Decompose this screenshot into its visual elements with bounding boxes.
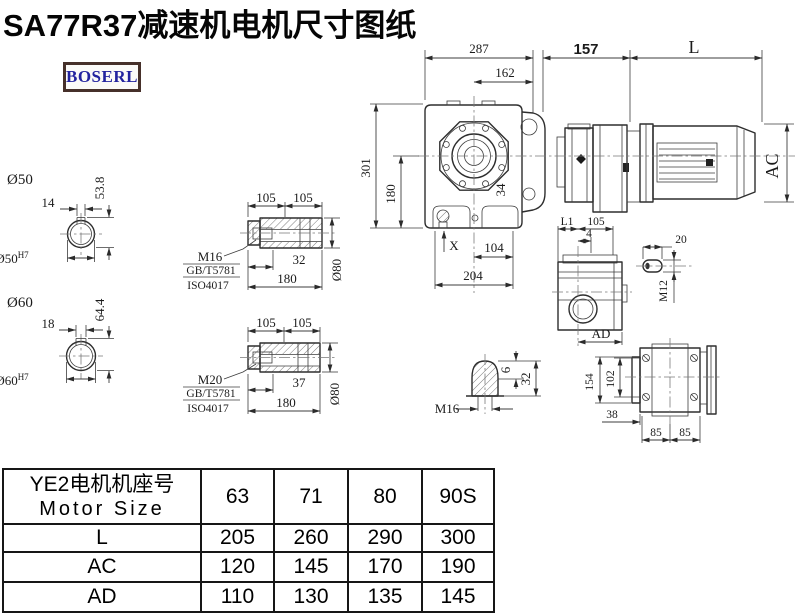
table-header-row: YE2电机机座号 Motor Size 63 71 80 90S [3, 469, 494, 524]
section50-label: Ø50 [7, 172, 33, 188]
col-63: 63 [201, 469, 274, 524]
shaft-section-60: Ø60 18 64.4 Ø60H7 [0, 295, 114, 388]
dim-L1: L1 [561, 216, 574, 228]
main-view-motor [418, 96, 795, 293]
dim-AD: AD [592, 326, 611, 341]
col-90S: 90S [422, 469, 494, 524]
std-gb: GB/T5781 [186, 388, 235, 400]
drawing-sheet: SA77R37减速机电机尺寸图纸 BOSERL [0, 0, 800, 613]
dim-180-main: 180 [383, 184, 398, 204]
cell: 300 [422, 524, 494, 552]
dim-105a: 105 [256, 190, 276, 205]
motor-size-table: YE2电机机座号 Motor Size 63 71 80 90S L 205 2… [2, 468, 495, 613]
dim-38: 38 [606, 409, 618, 421]
dim-53.8: 53.8 [92, 177, 107, 200]
dim-204: 204 [463, 268, 483, 283]
dim-85a: 85 [650, 427, 662, 439]
std-iso: ISO4017 [187, 403, 229, 415]
dim-85b: 85 [679, 427, 691, 439]
dim-bore-60: Ø60H7 [0, 372, 29, 388]
dim-180: 180 [276, 395, 296, 410]
dim-105a: 105 [256, 315, 276, 330]
cell: 260 [274, 524, 348, 552]
table-header-motor-size: YE2电机机座号 Motor Size [3, 469, 201, 524]
std-iso: ISO4017 [187, 280, 229, 292]
cell: 110 [201, 582, 274, 612]
table-row: AC 120 145 170 190 [3, 552, 494, 582]
section60-label: Ø60 [7, 295, 33, 311]
dim-dia80: Ø80 [327, 383, 342, 405]
dim-64.4: 64.4 [92, 298, 107, 321]
cell: 145 [274, 552, 348, 582]
dim-287: 287 [469, 41, 489, 56]
dim-105: 105 [587, 216, 605, 228]
key-detail: 20 M12 [636, 234, 694, 303]
dim-102: 102 [605, 370, 617, 388]
dim-34: 34 [493, 183, 508, 197]
dim-32: 32 [518, 373, 533, 386]
dim-105b: 105 [293, 190, 313, 205]
header-en: Motor Size [4, 497, 200, 521]
cell: 120 [201, 552, 274, 582]
row-label-L: L [3, 524, 201, 552]
header-cn: YE2电机机座号 [4, 472, 200, 497]
dim-104: 104 [484, 240, 504, 255]
row-label-AC: AC [3, 552, 201, 582]
cell: 190 [422, 552, 494, 582]
back-view: 154 102 38 85 85 [584, 338, 722, 443]
dim-AC: AC [762, 153, 782, 178]
table-row: L 205 260 290 300 [3, 524, 494, 552]
table-row: AD 110 130 135 145 [3, 582, 494, 612]
dim-6: 6 [498, 366, 513, 373]
row-label-AD: AD [3, 582, 201, 612]
main-view-dimensions: 287 162 157 L 301 180 X 104 204 [358, 37, 794, 289]
dim-154: 154 [584, 373, 596, 391]
shaft-section-50: Ø50 14 53.8 Ø50H7 [0, 172, 114, 266]
cell: 130 [274, 582, 348, 612]
dim-L: L [689, 37, 700, 57]
thread-label: M16 [198, 249, 223, 264]
main-view-gearbox: 34 [425, 101, 545, 228]
dim-4: 4 [586, 228, 592, 240]
dim-bore-50: Ø50H7 [0, 250, 29, 266]
dim-157: 157 [573, 41, 598, 58]
cell: 205 [201, 524, 274, 552]
cell: 290 [348, 524, 422, 552]
dim-X: X [449, 238, 459, 253]
shaft-detail-2: 105 105 M20 GB/T5781 ISO4017 37 180 Ø80 [183, 315, 342, 415]
dim-301: 301 [358, 158, 373, 178]
dim-14: 14 [42, 195, 56, 210]
col-71: 71 [274, 469, 348, 524]
dim-dia80: Ø80 [329, 259, 344, 281]
dim-32: 32 [293, 252, 306, 267]
cell: 170 [348, 552, 422, 582]
dim-162: 162 [495, 65, 515, 80]
col-80: 80 [348, 469, 422, 524]
cell: 145 [422, 582, 494, 612]
std-gb: GB/T5781 [186, 265, 235, 277]
dim-37: 37 [293, 375, 307, 390]
dim-105b: 105 [292, 315, 312, 330]
thread-label: M20 [198, 372, 223, 387]
key-thread: M12 [658, 280, 670, 302]
plug-thread: M16 [435, 401, 460, 416]
dim-180: 180 [277, 271, 297, 286]
side-view: L1 105 4 AD [552, 216, 632, 346]
breather-plug-detail: M16 6 32 [435, 351, 541, 416]
dim-18: 18 [42, 316, 55, 331]
technical-drawing: 34 [0, 0, 800, 468]
dim-20: 20 [675, 234, 687, 246]
shaft-detail-1: 105 105 M16 GB/T5781 ISO4017 32 180 Ø80 [183, 190, 344, 292]
cell: 135 [348, 582, 422, 612]
